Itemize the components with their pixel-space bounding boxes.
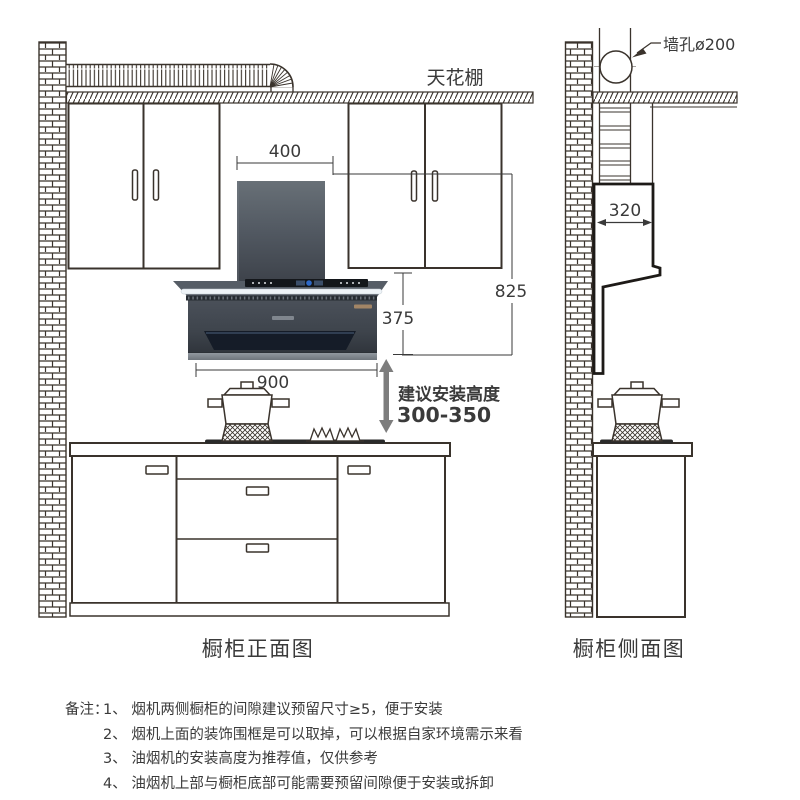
cabinet-door-handle [433,171,438,201]
hood-brand-label [354,305,372,309]
note-line-3: 3、 油烟机的安装高度为推荐值，仅供参考 [103,750,378,767]
duct-corrugation [67,65,271,87]
wall-hole-circle [600,51,632,83]
base-cabinet-side [593,443,692,617]
door-handle-left [146,466,168,474]
note-line-2: 2、 烟机上面的装饰围框是可以取掉，可以根据自家环境需示来看 [103,725,523,743]
pot-lid [224,389,270,396]
install-height-value: 300-350 [397,403,491,427]
dim-320: 320 [609,201,641,221]
base-cabinet-front [70,443,450,616]
pot-handle-right [272,399,289,407]
hood-base-bar [188,352,377,360]
door-handle-right [348,466,370,474]
dim-375: 375 [382,309,414,329]
hood-display-icon [306,280,312,286]
burner-support [222,424,272,441]
drawer-handle-top [247,487,269,495]
diagram-svg: 天花棚 [0,0,800,800]
kick-board [70,603,449,616]
ceiling-label: 天花棚 [426,67,483,89]
countertop-front [70,443,450,456]
brick-wall-left [39,42,66,617]
brick-wall-right [566,42,593,617]
notes-label: 备注： [65,701,109,718]
upper-cabinet-left [69,104,220,269]
pot-body [222,395,272,424]
countertop-side [593,443,692,456]
wall-hole-label: 墙孔ø200 [663,35,735,54]
hood-logo [272,316,294,320]
cabinet-installation-diagram: 天花棚 [0,0,800,800]
ceiling-slab-front [67,92,534,103]
ceiling-slab-side [593,92,737,103]
front-view-caption: 橱柜正面图 [202,637,315,661]
note-line-4: 4、 油烟机上部与橱柜底部可能需要预留间隙便于安装或拆卸 [103,775,494,792]
pot-handle-left [208,399,222,407]
dim-825: 825 [495,282,527,302]
upper-cabinet-right [349,104,502,269]
side-view-caption: 橱柜侧面图 [573,637,686,661]
cabinet-door-handle [133,170,138,200]
cabinet-door-handle [412,171,417,201]
note-line-1: 备注：1、 烟机两侧橱柜的间隙建议预留尺寸≥5，便于安装 [65,701,443,718]
hood-light-strip [181,289,382,294]
cabinet-door-handle [154,170,159,200]
hood-chimney [237,181,325,281]
install-arrow-shaft [384,371,390,421]
install-height-label: 建议安装高度 [398,384,501,405]
dim-400: 400 [269,142,301,162]
drawer-handle-bottom [247,544,269,552]
hood-suction-recess [204,331,356,350]
